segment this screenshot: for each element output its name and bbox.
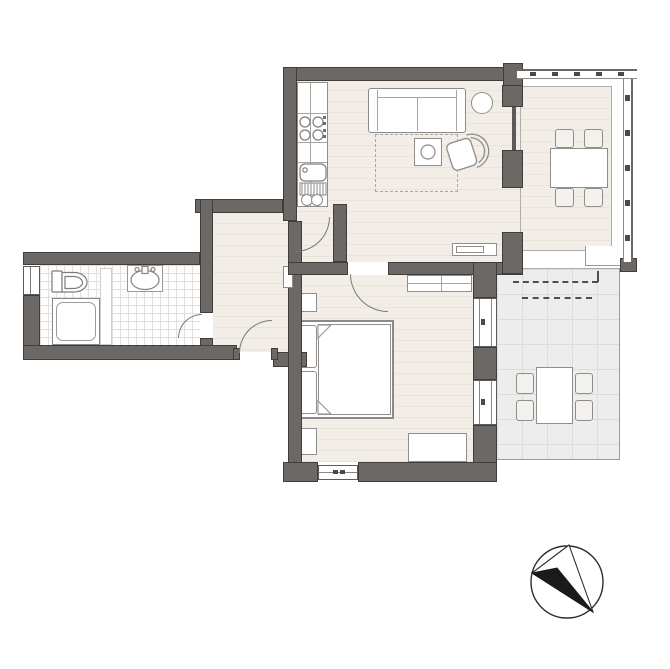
terrace-chair xyxy=(555,188,574,207)
radiator-inner xyxy=(456,246,484,253)
glazing-line xyxy=(491,381,492,424)
overhang-dashed-line xyxy=(513,281,598,283)
terrace-chair xyxy=(584,188,603,207)
patio-chair xyxy=(575,400,593,421)
frame-tick xyxy=(340,470,345,474)
pier-terrace-1 xyxy=(502,85,523,107)
washbasin-cabinet xyxy=(127,265,163,292)
wall-living-left xyxy=(283,67,297,221)
mullion-tick xyxy=(596,72,602,76)
dresser xyxy=(408,433,467,462)
sofa-cushion-divider xyxy=(417,97,418,131)
patio-chair xyxy=(516,400,534,421)
sideboard-divider-h xyxy=(408,283,471,284)
kitchen-counter xyxy=(297,82,328,207)
counter-divider xyxy=(298,113,327,114)
overhang-dashed-corner xyxy=(597,271,599,282)
wall-bedroom-right-a xyxy=(473,262,497,298)
mullion-tick xyxy=(574,72,580,76)
wall-bedroom-left xyxy=(288,221,302,482)
terrace-chair xyxy=(584,129,603,148)
bathroom-window xyxy=(23,266,40,295)
wall-bedroom-bottom-right xyxy=(358,462,497,482)
wall-hall-left-upper xyxy=(200,199,213,313)
sofa-armrest-right xyxy=(456,90,457,131)
wall-bedroom-bottom-left xyxy=(283,462,318,482)
mullion-tick xyxy=(618,72,624,76)
mullion-tick xyxy=(552,72,558,76)
wall-stub-hall-living xyxy=(333,204,347,262)
entry-door-jamb xyxy=(271,348,278,360)
frame-tick xyxy=(481,319,485,325)
glazing-line xyxy=(479,381,480,424)
counter-divider xyxy=(298,142,327,143)
mullion-tick xyxy=(625,200,630,206)
glazing-line xyxy=(479,299,480,346)
wall-bedroom-top-left xyxy=(288,262,348,275)
frame-tick xyxy=(333,470,338,474)
side-table-round xyxy=(471,92,493,114)
glazing-fixed-panel xyxy=(512,107,516,150)
patio-table xyxy=(536,367,573,424)
pier-terrace-3 xyxy=(502,232,523,274)
mullion-tick xyxy=(625,130,630,136)
bedroom-terrace-door-2 xyxy=(473,380,497,425)
wall-bath-top xyxy=(23,252,200,265)
terrace-dining-table xyxy=(550,148,608,188)
mullion-tick xyxy=(625,95,630,101)
glazing-line xyxy=(491,299,492,346)
wall-bedroom-right-b xyxy=(473,347,497,380)
shower-tray-inner xyxy=(56,302,96,341)
apartment-floor-plan xyxy=(0,0,670,669)
north-arrow-icon xyxy=(531,545,603,618)
shower-partition xyxy=(100,268,112,345)
counter-divider xyxy=(298,162,327,163)
mattress xyxy=(318,324,391,415)
wall-bath-left xyxy=(23,295,40,347)
mullion-tick xyxy=(530,72,536,76)
patio-chair xyxy=(516,373,534,394)
bathroom-window-mullion xyxy=(30,267,31,294)
pillow xyxy=(300,371,317,414)
sideboard-divider-v xyxy=(441,276,442,291)
wall-bath-bottom xyxy=(23,345,237,360)
mullion-tick xyxy=(625,235,630,241)
patio-chair xyxy=(575,373,593,394)
coffee-table xyxy=(414,138,442,166)
bedroom-terrace-door-1 xyxy=(473,298,497,347)
frame-tick xyxy=(481,399,485,405)
glazing-line xyxy=(319,472,357,473)
mullion-tick xyxy=(625,165,630,171)
counter-edge-line xyxy=(310,83,311,206)
overhang-dashed-line-2 xyxy=(522,297,592,299)
pier-terrace-2 xyxy=(502,150,523,188)
terrace-chair xyxy=(555,129,574,148)
wall-living-top xyxy=(283,67,517,81)
